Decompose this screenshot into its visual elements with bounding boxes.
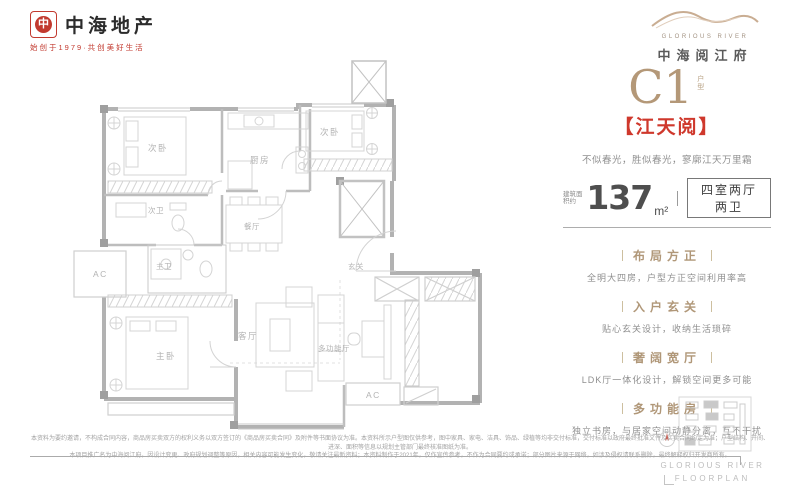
brand-name: 中海地产 bbox=[65, 11, 157, 38]
room-label-kitchen: 厨房 bbox=[250, 155, 270, 165]
room-label-bedroom3: 次卧 bbox=[320, 127, 340, 137]
feature-item: 布局方正 全明大四房，户型方正空间利用率高 bbox=[552, 247, 782, 284]
brand-tagline: 始创于1979·共创美好生活 bbox=[30, 42, 157, 53]
room-label-ac-left: AC bbox=[93, 269, 108, 279]
feature-divider bbox=[622, 403, 623, 414]
feature-item: 入户玄关 贴心玄关设计，收纳生活琐碎 bbox=[552, 298, 782, 335]
area-row: 建筑面积约 137 m² 四室两厅两卫 bbox=[563, 178, 771, 228]
caption-line-1: GLORIOUS RIVER bbox=[655, 461, 770, 470]
unit-info-panel: C1户型 【江天阅】 不似春光，胜似春光，寥廓江天万里霜 建筑面积约 137 m… bbox=[552, 64, 782, 451]
feature-divider bbox=[622, 352, 623, 363]
room-label-bath1: 主卫 bbox=[156, 261, 172, 271]
unit-code-suffix: 户型 bbox=[696, 76, 706, 92]
room-label-bedroom2: 次卧 bbox=[148, 143, 168, 153]
unit-code: C1 bbox=[628, 60, 692, 114]
feature-desc: 全明大四房，户型方正空间利用率高 bbox=[552, 271, 782, 284]
feature-title: 入户玄关 bbox=[633, 298, 701, 315]
project-logo: GLORIOUS RIVER 中海阅江府 bbox=[630, 6, 780, 64]
area-prefix: 建筑面积约 bbox=[563, 191, 586, 206]
area-divider bbox=[677, 191, 678, 206]
layout-spec: 四室两厅两卫 bbox=[687, 178, 771, 218]
unit-code-row: C1户型 bbox=[552, 64, 782, 110]
feature-divider bbox=[622, 250, 623, 261]
feature-desc: 贴心玄关设计，收纳生活琐碎 bbox=[552, 322, 782, 335]
brand-logo: 中 中海地产 始创于1979·共创美好生活 bbox=[30, 11, 157, 53]
disclaimer-line-1: 本资料为要约邀请，不构成合同内容，商品房买卖双方的权利义务以双方签订的《商品房买… bbox=[30, 435, 770, 452]
feature-header: 入户玄关 bbox=[552, 298, 782, 315]
feature-header: 布局方正 bbox=[552, 247, 782, 264]
feature-divider bbox=[711, 250, 712, 261]
room-label-foyer: 玄关 bbox=[348, 261, 364, 271]
feature-title: 布局方正 bbox=[633, 247, 701, 264]
room-label-bath2: 次卫 bbox=[148, 205, 164, 215]
room-label-living: 客厅 bbox=[238, 331, 258, 341]
room-label-master: 主卧 bbox=[156, 351, 176, 361]
brand-seal-icon: 中 bbox=[30, 11, 57, 38]
unit-slogan: 不似春光，胜似春光，寥廓江天万里霜 bbox=[552, 152, 782, 166]
wave-icon bbox=[650, 6, 760, 32]
room-label-dining: 餐厅 bbox=[244, 222, 260, 231]
feature-divider bbox=[622, 301, 623, 312]
area-unit: m² bbox=[654, 204, 668, 218]
floorplan-poster: { "colors": {"accent_tan": "#b49878", "b… bbox=[0, 0, 800, 500]
entry-cabinets bbox=[375, 277, 475, 301]
feature-title: 奢阔宽厅 bbox=[633, 349, 701, 366]
elevator-shaft bbox=[340, 61, 386, 237]
project-name-en: GLORIOUS RIVER bbox=[630, 34, 780, 40]
feature-divider bbox=[711, 301, 712, 312]
footer-rule bbox=[30, 456, 740, 457]
feature-header: 奢阔宽厅 bbox=[552, 349, 782, 366]
room-label-multi: 多功能厅 bbox=[318, 343, 350, 353]
feature-divider bbox=[711, 352, 712, 363]
brand-seal-glyph: 中 bbox=[35, 16, 52, 33]
feature-item: 奢阔宽厅 LDK厅一体化设计，解锁空间更多可能 bbox=[552, 349, 782, 386]
area-value: 137 bbox=[586, 184, 652, 212]
floorplan-drawing: 次卧 厨房 次卧 次卫 主卫 主卧 餐厅 客厅 多功能厅 玄关 AC AC bbox=[60, 55, 520, 435]
room-label-ac-bottom: AC bbox=[366, 390, 381, 400]
caption-bracket bbox=[664, 475, 674, 485]
unit-title: 【江天阅】 bbox=[552, 112, 782, 139]
feature-desc: LDK厅一体化设计，解锁空间更多可能 bbox=[552, 373, 782, 386]
wardrobes bbox=[108, 159, 419, 386]
